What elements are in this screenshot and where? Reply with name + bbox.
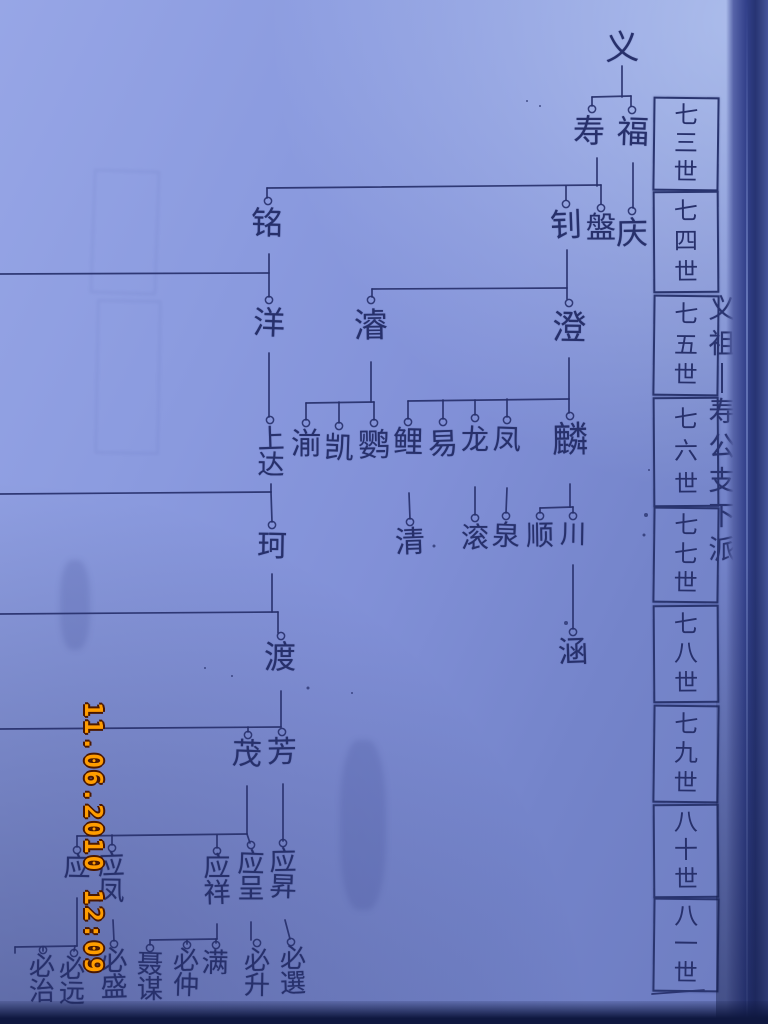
tree-node: 龙 [461, 426, 489, 453]
tree-node: 洋 [253, 308, 285, 339]
tree-node: 顺 [526, 522, 554, 549]
ink-speck [231, 675, 233, 677]
hook-circle [628, 207, 635, 214]
tree-edge [271, 492, 272, 522]
tree-edge [0, 612, 278, 614]
tree-edge [113, 920, 114, 941]
photo-of-genealogy-page: 义寿福庆铭钊盤洋濬澄上达湔凯鹦鲤易龙凤麟珂清滚泉顺川涵渡茂芳应应凤应祥应呈应昇必… [0, 0, 768, 1024]
tree-node: 上达 [258, 426, 285, 479]
hook-circle [266, 416, 273, 423]
tree-node: 满 [202, 950, 229, 976]
tree-node: 澄 [552, 312, 586, 345]
tree-edge [506, 488, 507, 513]
tree-edge [0, 273, 269, 274]
ink-speck [648, 469, 650, 471]
tree-node: 渡 [264, 642, 296, 673]
tree-node: 聂谋 [137, 952, 163, 1003]
tree-node: 义 [605, 32, 639, 65]
tree-node: 濬 [354, 310, 388, 343]
tree-node: 凯 [324, 434, 354, 463]
tree-node: 必選 [280, 946, 306, 997]
hook-circle [264, 197, 271, 204]
ink-speck [564, 621, 568, 625]
tree-edge [285, 920, 290, 939]
tree-node: 盤 [586, 214, 616, 243]
tree-node: 鲤 [393, 428, 423, 457]
tree-node: 庆 [616, 218, 648, 249]
page-edge-shadow-right-lower [716, 560, 768, 1024]
tree-node: 应祥 [204, 854, 231, 907]
tree-node: 钊 [550, 210, 582, 241]
hook-circle [278, 728, 285, 735]
ink-speck [643, 534, 646, 537]
tree-node: 滚 [461, 524, 489, 551]
tree-edge [15, 946, 77, 947]
ink-speck [204, 667, 206, 669]
tree-node: 铭 [251, 208, 283, 239]
tree-node: 珂 [257, 532, 287, 561]
tree-node: 凤 [493, 426, 521, 453]
tree-edge [306, 402, 374, 403]
tree-node: 易 [428, 430, 458, 459]
tree-node: 福 [617, 117, 649, 148]
tree-node: 寿 [573, 116, 605, 147]
page-edge-shadow-bottom [0, 1001, 768, 1024]
hook-circle [628, 106, 635, 113]
tree-node: 应昇 [270, 848, 297, 901]
hook-circle [597, 204, 604, 211]
tree-edge [0, 727, 281, 729]
tree-node: 泉 [492, 522, 520, 549]
tree-edge [150, 939, 217, 940]
tree-edge [372, 288, 567, 289]
ink-speck [539, 105, 541, 107]
tree-node: 涵 [558, 638, 588, 667]
tree-node: 必仲 [173, 948, 199, 999]
tree-node: 麟 [552, 422, 588, 457]
tree-edge [408, 399, 569, 401]
tree-edge [652, 990, 704, 994]
tree-node: 清 [395, 528, 425, 557]
ink-speck [644, 513, 648, 517]
ink-speck [307, 687, 310, 690]
ink-speck [351, 692, 353, 694]
tree-node: 鹦 [358, 430, 390, 461]
ink-speck [433, 545, 436, 548]
tree-node: 湔 [291, 430, 321, 459]
tree-edge [592, 96, 631, 97]
timestamp-stamp: 11.06.2010 12:09 [79, 702, 108, 975]
tree-edge [267, 185, 601, 188]
tree-node: 必治 [29, 954, 55, 1005]
tree-node: 应呈 [238, 850, 265, 903]
tree-edge [540, 507, 573, 508]
annotation-dash [721, 363, 723, 393]
tree-node: 芳 [267, 738, 297, 767]
tree-edge [409, 493, 410, 519]
ink-speck [526, 100, 528, 102]
hook-circle [367, 296, 374, 303]
tree-node: 川 [560, 522, 586, 547]
hook-circle [565, 299, 572, 306]
tree-edge [0, 492, 271, 494]
tree-node: 必升 [244, 948, 270, 999]
tree-node: 茂 [232, 740, 262, 769]
